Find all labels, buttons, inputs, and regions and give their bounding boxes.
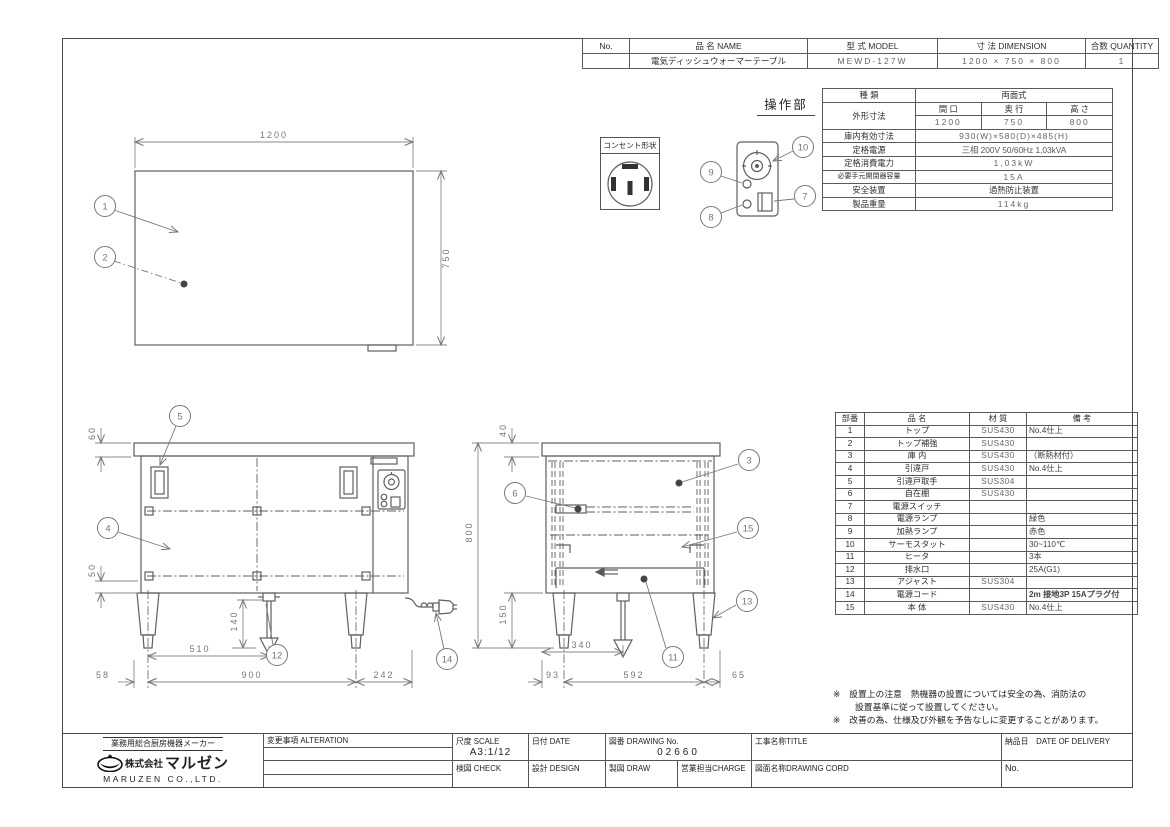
spec-safety-value: 過熱防止装置	[916, 184, 1113, 198]
charge-label: 営業担当CHARGE	[678, 761, 752, 787]
drawing-no-cell: 図番 DRAWING No. 02660	[606, 734, 752, 761]
alteration-cell: 変更事項 ALTERATION	[264, 734, 453, 787]
maruzen-logo-icon	[97, 754, 123, 772]
parts-col-no: 部番	[836, 413, 865, 426]
part-no: 14	[836, 589, 865, 602]
drawing-no-label: 図番 DRAWING No.	[609, 736, 678, 747]
part-no: 7	[836, 501, 865, 514]
part-note: 3本	[1027, 551, 1138, 564]
part-name: トップ補強	[865, 438, 970, 451]
company-prefix: 株式会社	[125, 756, 163, 770]
part-name: 本 体	[865, 601, 970, 614]
title-cell: 工事名称TITLE	[752, 734, 1002, 761]
drawing-no-value: 02660	[606, 747, 751, 758]
part-no: 5	[836, 475, 865, 488]
installation-notes: ※ 設置上の注意 熱機器の設置については安全の為、消防法の 設置基準に従って設置…	[833, 688, 1133, 726]
part-name: アジャスト	[865, 576, 970, 589]
spec-weight-value: 114kg	[916, 197, 1113, 211]
drawing-sheet: No. 品 名 NAME 型 式 MODEL 寸 法 DIMENSION 合数 …	[0, 0, 1170, 827]
spec-weight-label: 製品重量	[823, 197, 916, 211]
value-model: MEWD-127W	[808, 54, 938, 69]
parts-row: 10サーモスタット30~110℃	[836, 538, 1138, 551]
spec-d-value: 750	[981, 116, 1047, 130]
scale-value: A3:1/12	[453, 747, 528, 758]
part-name: ヒータ	[865, 551, 970, 564]
value-no	[583, 54, 630, 69]
company-name: マルゼン	[165, 752, 229, 773]
part-no: 15	[836, 601, 865, 614]
part-note: No.4仕上	[1027, 425, 1138, 438]
part-material	[970, 538, 1027, 551]
design-cell: 設計 DESIGN	[529, 761, 606, 787]
part-material: SUS430	[970, 463, 1027, 476]
part-note: 赤色	[1027, 526, 1138, 539]
alteration-row-empty	[264, 761, 452, 775]
part-no: 10	[836, 538, 865, 551]
value-quantity: 1	[1086, 54, 1159, 69]
alteration-label: 変更事項 ALTERATION	[264, 734, 452, 748]
part-name: 自在棚	[865, 488, 970, 501]
part-name: 電源コード	[865, 589, 970, 602]
value-dimension: 1200 × 750 × 800	[938, 54, 1086, 69]
spec-type-value: 両面式	[916, 89, 1113, 103]
date-label: 日付 DATE	[532, 736, 570, 747]
spec-table: 種 類 両面式 外形寸法 間 口 奥 行 高 さ 1200 750 800 庫内…	[822, 88, 1113, 211]
part-name: サーモスタット	[865, 538, 970, 551]
part-name: 排水口	[865, 564, 970, 577]
scale-cell: 尺度 SCALE A3:1/12	[453, 734, 529, 761]
alteration-row-empty	[264, 748, 452, 761]
draw-label: 製図 DRAW	[606, 761, 678, 787]
check-label: 検図 CHECK	[456, 763, 501, 774]
part-no: 1	[836, 425, 865, 438]
part-note	[1027, 576, 1138, 589]
drawing-name-label: 図面名称DRAWING CORD	[755, 763, 849, 774]
col-model: 型 式 MODEL	[808, 39, 938, 54]
part-no: 4	[836, 463, 865, 476]
parts-row: 9加熱ランプ赤色	[836, 526, 1138, 539]
delivery-cell: 納品日 DATE OF DELIVERY	[1002, 734, 1132, 761]
check-cell: 検図 CHECK	[453, 761, 529, 787]
spec-type-label: 種 類	[823, 89, 916, 103]
parts-col-note: 備 考	[1027, 413, 1138, 426]
parts-row: 1トップSUS430No.4仕上	[836, 425, 1138, 438]
no-label: No.	[1005, 763, 1019, 773]
note-line-1: ※ 設置上の注意 熱機器の設置については安全の為、消防法の	[833, 688, 1133, 701]
maker-cell: 業務用総合厨房機器メーカー 株式会社マルゼン MARUZEN CO.,LTD.	[63, 734, 264, 787]
spec-breaker-value: 15A	[916, 170, 1113, 184]
spec-h-value: 800	[1047, 116, 1113, 130]
parts-col-material: 材 質	[970, 413, 1027, 426]
parts-row: 8電源ランプ緑色	[836, 513, 1138, 526]
col-name: 品 名 NAME	[630, 39, 808, 54]
part-material	[970, 501, 1027, 514]
part-no: 13	[836, 576, 865, 589]
part-material: SUS430	[970, 438, 1027, 451]
outlet-shape-label: コンセント形状	[601, 138, 659, 154]
note-line-2: 設置基準に従って設置してください。	[833, 701, 1133, 714]
design-label: 設計 DESIGN	[532, 763, 580, 774]
parts-row: 13アジャストSUS304	[836, 576, 1138, 589]
part-note: No.4仕上	[1027, 601, 1138, 614]
parts-row: 12排水口25A(G1)	[836, 564, 1138, 577]
part-no: 12	[836, 564, 865, 577]
spec-outer-label: 外形寸法	[823, 102, 916, 129]
spec-power-value: 三相 200V 50/60Hz 1,03kVA	[916, 143, 1113, 157]
part-material	[970, 551, 1027, 564]
parts-row: 6自在棚SUS430	[836, 488, 1138, 501]
part-name: 電源ランプ	[865, 513, 970, 526]
spec-d-label: 奥 行	[981, 102, 1047, 116]
part-name: 引違戸	[865, 463, 970, 476]
spec-w-value: 1200	[916, 116, 982, 130]
spec-inner-label: 庫内有効寸法	[823, 129, 916, 143]
parts-row: 7電源スイッチ	[836, 501, 1138, 514]
part-material: SUS430	[970, 488, 1027, 501]
part-material: SUS430	[970, 425, 1027, 438]
delivery-label: 納品日 DATE OF DELIVERY	[1005, 736, 1110, 747]
part-note	[1027, 488, 1138, 501]
part-name: 引違戸取手	[865, 475, 970, 488]
part-note: 2m 接地3P 15Aプラグ付	[1027, 589, 1138, 602]
part-no: 2	[836, 438, 865, 451]
operation-panel-label: 操作部	[757, 94, 815, 116]
parts-table: 部番 品 名 材 質 備 考 1トップSUS430No.4仕上 2トップ補強SU…	[835, 412, 1138, 615]
parts-row: 3庫 内SUS430（断熱材付）	[836, 450, 1138, 463]
part-no: 6	[836, 488, 865, 501]
part-no: 3	[836, 450, 865, 463]
parts-row: 2トップ補強SUS430	[836, 438, 1138, 451]
part-material	[970, 513, 1027, 526]
spec-consumption-value: 1,03kW	[916, 156, 1113, 170]
company-name-en: MARUZEN CO.,LTD.	[103, 774, 223, 784]
drawing-name-cell: 図面名称DRAWING CORD	[752, 761, 1002, 787]
part-note	[1027, 475, 1138, 488]
value-name: 電気ディッシュウォーマーテーブル	[630, 54, 808, 69]
parts-table-head: 部番 品 名 材 質 備 考	[836, 413, 1138, 426]
note-line-3: ※ 改善の為、仕様及び外観を予告なしに変更することがあります。	[833, 714, 1133, 727]
col-dimension: 寸 法 DIMENSION	[938, 39, 1086, 54]
part-note: No.4仕上	[1027, 463, 1138, 476]
part-name: 加熱ランプ	[865, 526, 970, 539]
no-cell: No.	[1002, 761, 1132, 787]
part-material	[970, 526, 1027, 539]
date-cell: 日付 DATE	[529, 734, 606, 761]
parts-row: 4引違戸SUS430No.4仕上	[836, 463, 1138, 476]
part-material: SUS304	[970, 475, 1027, 488]
part-material: SUS304	[970, 576, 1027, 589]
part-no: 8	[836, 513, 865, 526]
part-note: 25A(G1)	[1027, 564, 1138, 577]
part-note	[1027, 501, 1138, 514]
parts-row: 15本 体SUS430No.4仕上	[836, 601, 1138, 614]
parts-row: 5引違戸取手SUS304	[836, 475, 1138, 488]
alteration-row-empty	[264, 775, 452, 787]
part-name: 庫 内	[865, 450, 970, 463]
scale-label: 尺度 SCALE	[456, 736, 499, 747]
part-note: 30~110℃	[1027, 538, 1138, 551]
spec-consumption-label: 定格消費電力	[823, 156, 916, 170]
header-table-row: 電気ディッシュウォーマーテーブル MEWD-127W 1200 × 750 × …	[583, 54, 1159, 69]
part-name: 電源スイッチ	[865, 501, 970, 514]
header-table-head: No. 品 名 NAME 型 式 MODEL 寸 法 DIMENSION 合数 …	[583, 39, 1159, 54]
part-note	[1027, 438, 1138, 451]
spec-power-label: 定格電源	[823, 143, 916, 157]
title-block: 業務用総合厨房機器メーカー 株式会社マルゼン MARUZEN CO.,LTD. …	[62, 733, 1133, 788]
part-material: SUS430	[970, 450, 1027, 463]
parts-col-name: 品 名	[865, 413, 970, 426]
title-label: 工事名称TITLE	[755, 736, 807, 747]
parts-row: 11ヒータ3本	[836, 551, 1138, 564]
draw-charge-cell: 製図 DRAW 営業担当CHARGE	[606, 761, 752, 787]
spec-h-label: 高 さ	[1047, 102, 1113, 116]
part-material	[970, 564, 1027, 577]
part-no: 11	[836, 551, 865, 564]
header-table: No. 品 名 NAME 型 式 MODEL 寸 法 DIMENSION 合数 …	[582, 38, 1159, 69]
parts-row: 14電源コード2m 接地3P 15Aプラグ付	[836, 589, 1138, 602]
part-note: 緑色	[1027, 513, 1138, 526]
part-name: トップ	[865, 425, 970, 438]
col-quantity: 合数 QUANTITY	[1086, 39, 1159, 54]
spec-breaker-label: 必要手元開閉器容量	[823, 170, 916, 184]
outlet-shape-box: コンセント形状	[600, 137, 660, 210]
spec-inner-value: 930(W)×580(D)×485(H)	[916, 129, 1113, 143]
part-note: （断熱材付）	[1027, 450, 1138, 463]
part-no: 9	[836, 526, 865, 539]
part-material: SUS430	[970, 601, 1027, 614]
col-no: No.	[583, 39, 630, 54]
spec-w-label: 間 口	[916, 102, 982, 116]
part-material	[970, 589, 1027, 602]
spec-safety-label: 安全装置	[823, 184, 916, 198]
maker-tagline: 業務用総合厨房機器メーカー	[103, 737, 223, 751]
